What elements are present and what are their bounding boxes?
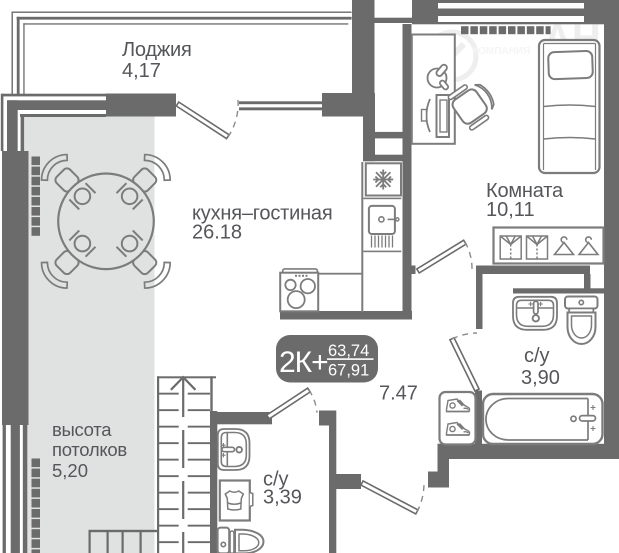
svg-text:с/у: с/у bbox=[524, 345, 550, 367]
svg-text:10,11: 10,11 bbox=[486, 199, 535, 221]
svg-text:3,90: 3,90 bbox=[521, 367, 560, 389]
svg-text:7.47: 7.47 bbox=[379, 383, 418, 405]
svg-text:26.18: 26.18 bbox=[192, 222, 242, 244]
svg-text:КОМПАНИЯ: КОМПАНИЯ bbox=[472, 46, 530, 57]
svg-text:Лоджия: Лоджия bbox=[122, 39, 192, 61]
svg-text:63,74: 63,74 bbox=[328, 342, 369, 360]
svg-text:высота: высота bbox=[52, 419, 112, 440]
svg-text:2К+: 2К+ bbox=[279, 346, 328, 379]
svg-text:5,20: 5,20 bbox=[52, 460, 88, 481]
svg-text:4,17: 4,17 bbox=[122, 60, 161, 82]
svg-text:3,39: 3,39 bbox=[263, 487, 302, 509]
svg-text:потолков: потолков bbox=[52, 439, 127, 460]
svg-text:67,91: 67,91 bbox=[328, 362, 369, 380]
